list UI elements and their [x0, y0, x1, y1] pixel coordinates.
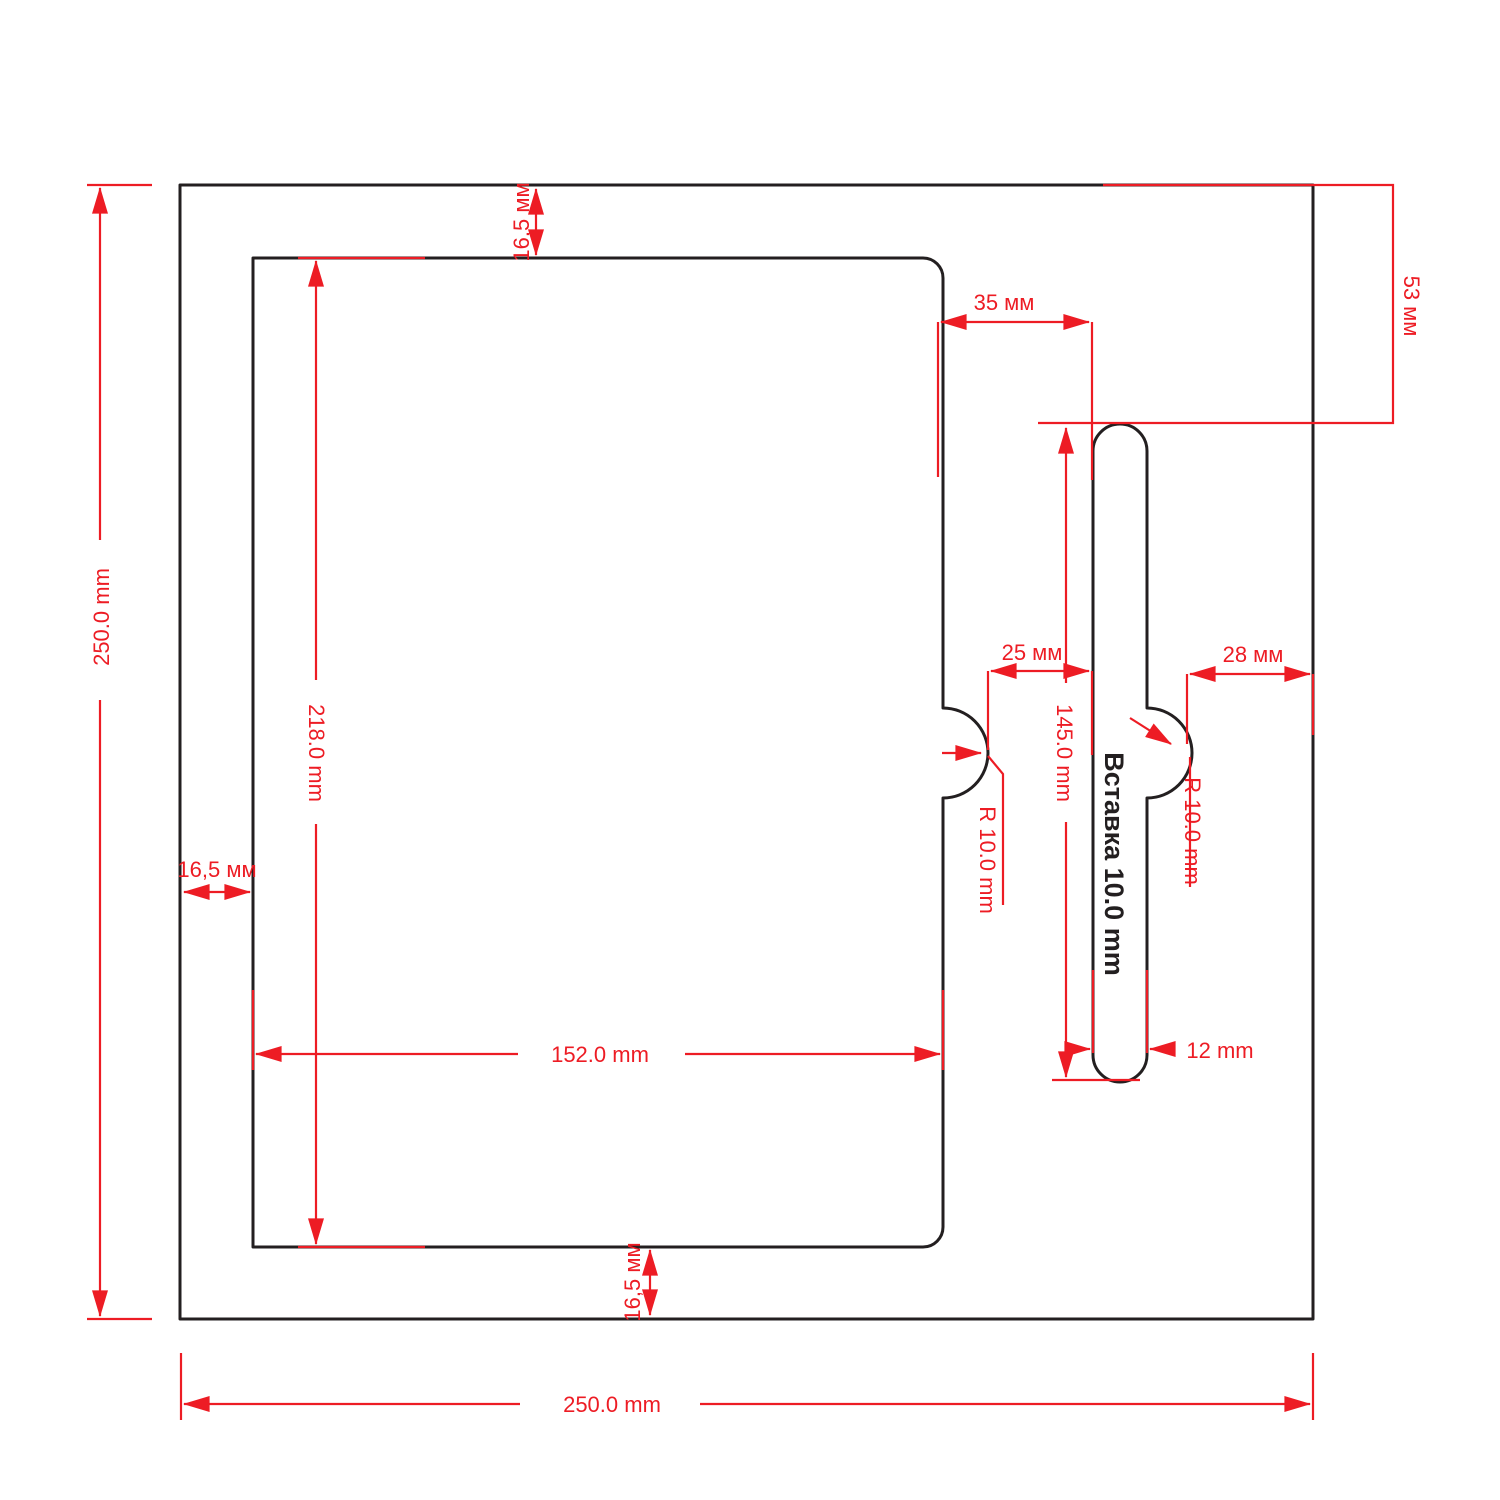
dim-slot-width-label: 12 mm: [1186, 1038, 1253, 1063]
dim-inset-top-label: 16,5 мм: [509, 182, 534, 261]
dim-inset-top: 16,5 мм: [509, 182, 536, 261]
dim-radius-right-label: R 10.0 mm: [1180, 777, 1205, 885]
dim-offset-53-label: 53 мм: [1399, 276, 1424, 337]
dim-inset-bottom-label: 16,5 мм: [620, 1242, 645, 1321]
dim-gap-25-label: 25 мм: [1002, 640, 1063, 665]
dim-outer-width: 250.0 mm: [181, 1353, 1313, 1420]
dim-gap-35-label: 35 мм: [974, 290, 1035, 315]
dim-gap-28-label: 28 мм: [1223, 642, 1284, 667]
dim-slot-height-label: 145.0 mm: [1052, 704, 1077, 802]
drawing-svg: 250.0 mm 250.0 mm 16,5 мм 16,5 мм 16,5 м…: [0, 0, 1500, 1500]
cad-drawing-canvas: 250.0 mm 250.0 mm 16,5 мм 16,5 мм 16,5 м…: [0, 0, 1500, 1500]
dim-outer-width-label: 250.0 mm: [563, 1392, 661, 1417]
dim-radius-left-label: R 10.0 mm: [975, 806, 1000, 914]
dim-outer-height-label: 250.0 mm: [89, 568, 114, 666]
dim-outer-height: 250.0 mm: [87, 185, 152, 1319]
insert-caption: Вставка 10.0 mm: [1099, 752, 1129, 975]
dim-inset-left-label: 16,5 мм: [177, 857, 256, 882]
dim-cutout-height-label: 218.0 mm: [304, 704, 329, 802]
dim-cutout-width-label: 152.0 mm: [551, 1042, 649, 1067]
cutout-outline: [253, 258, 988, 1247]
